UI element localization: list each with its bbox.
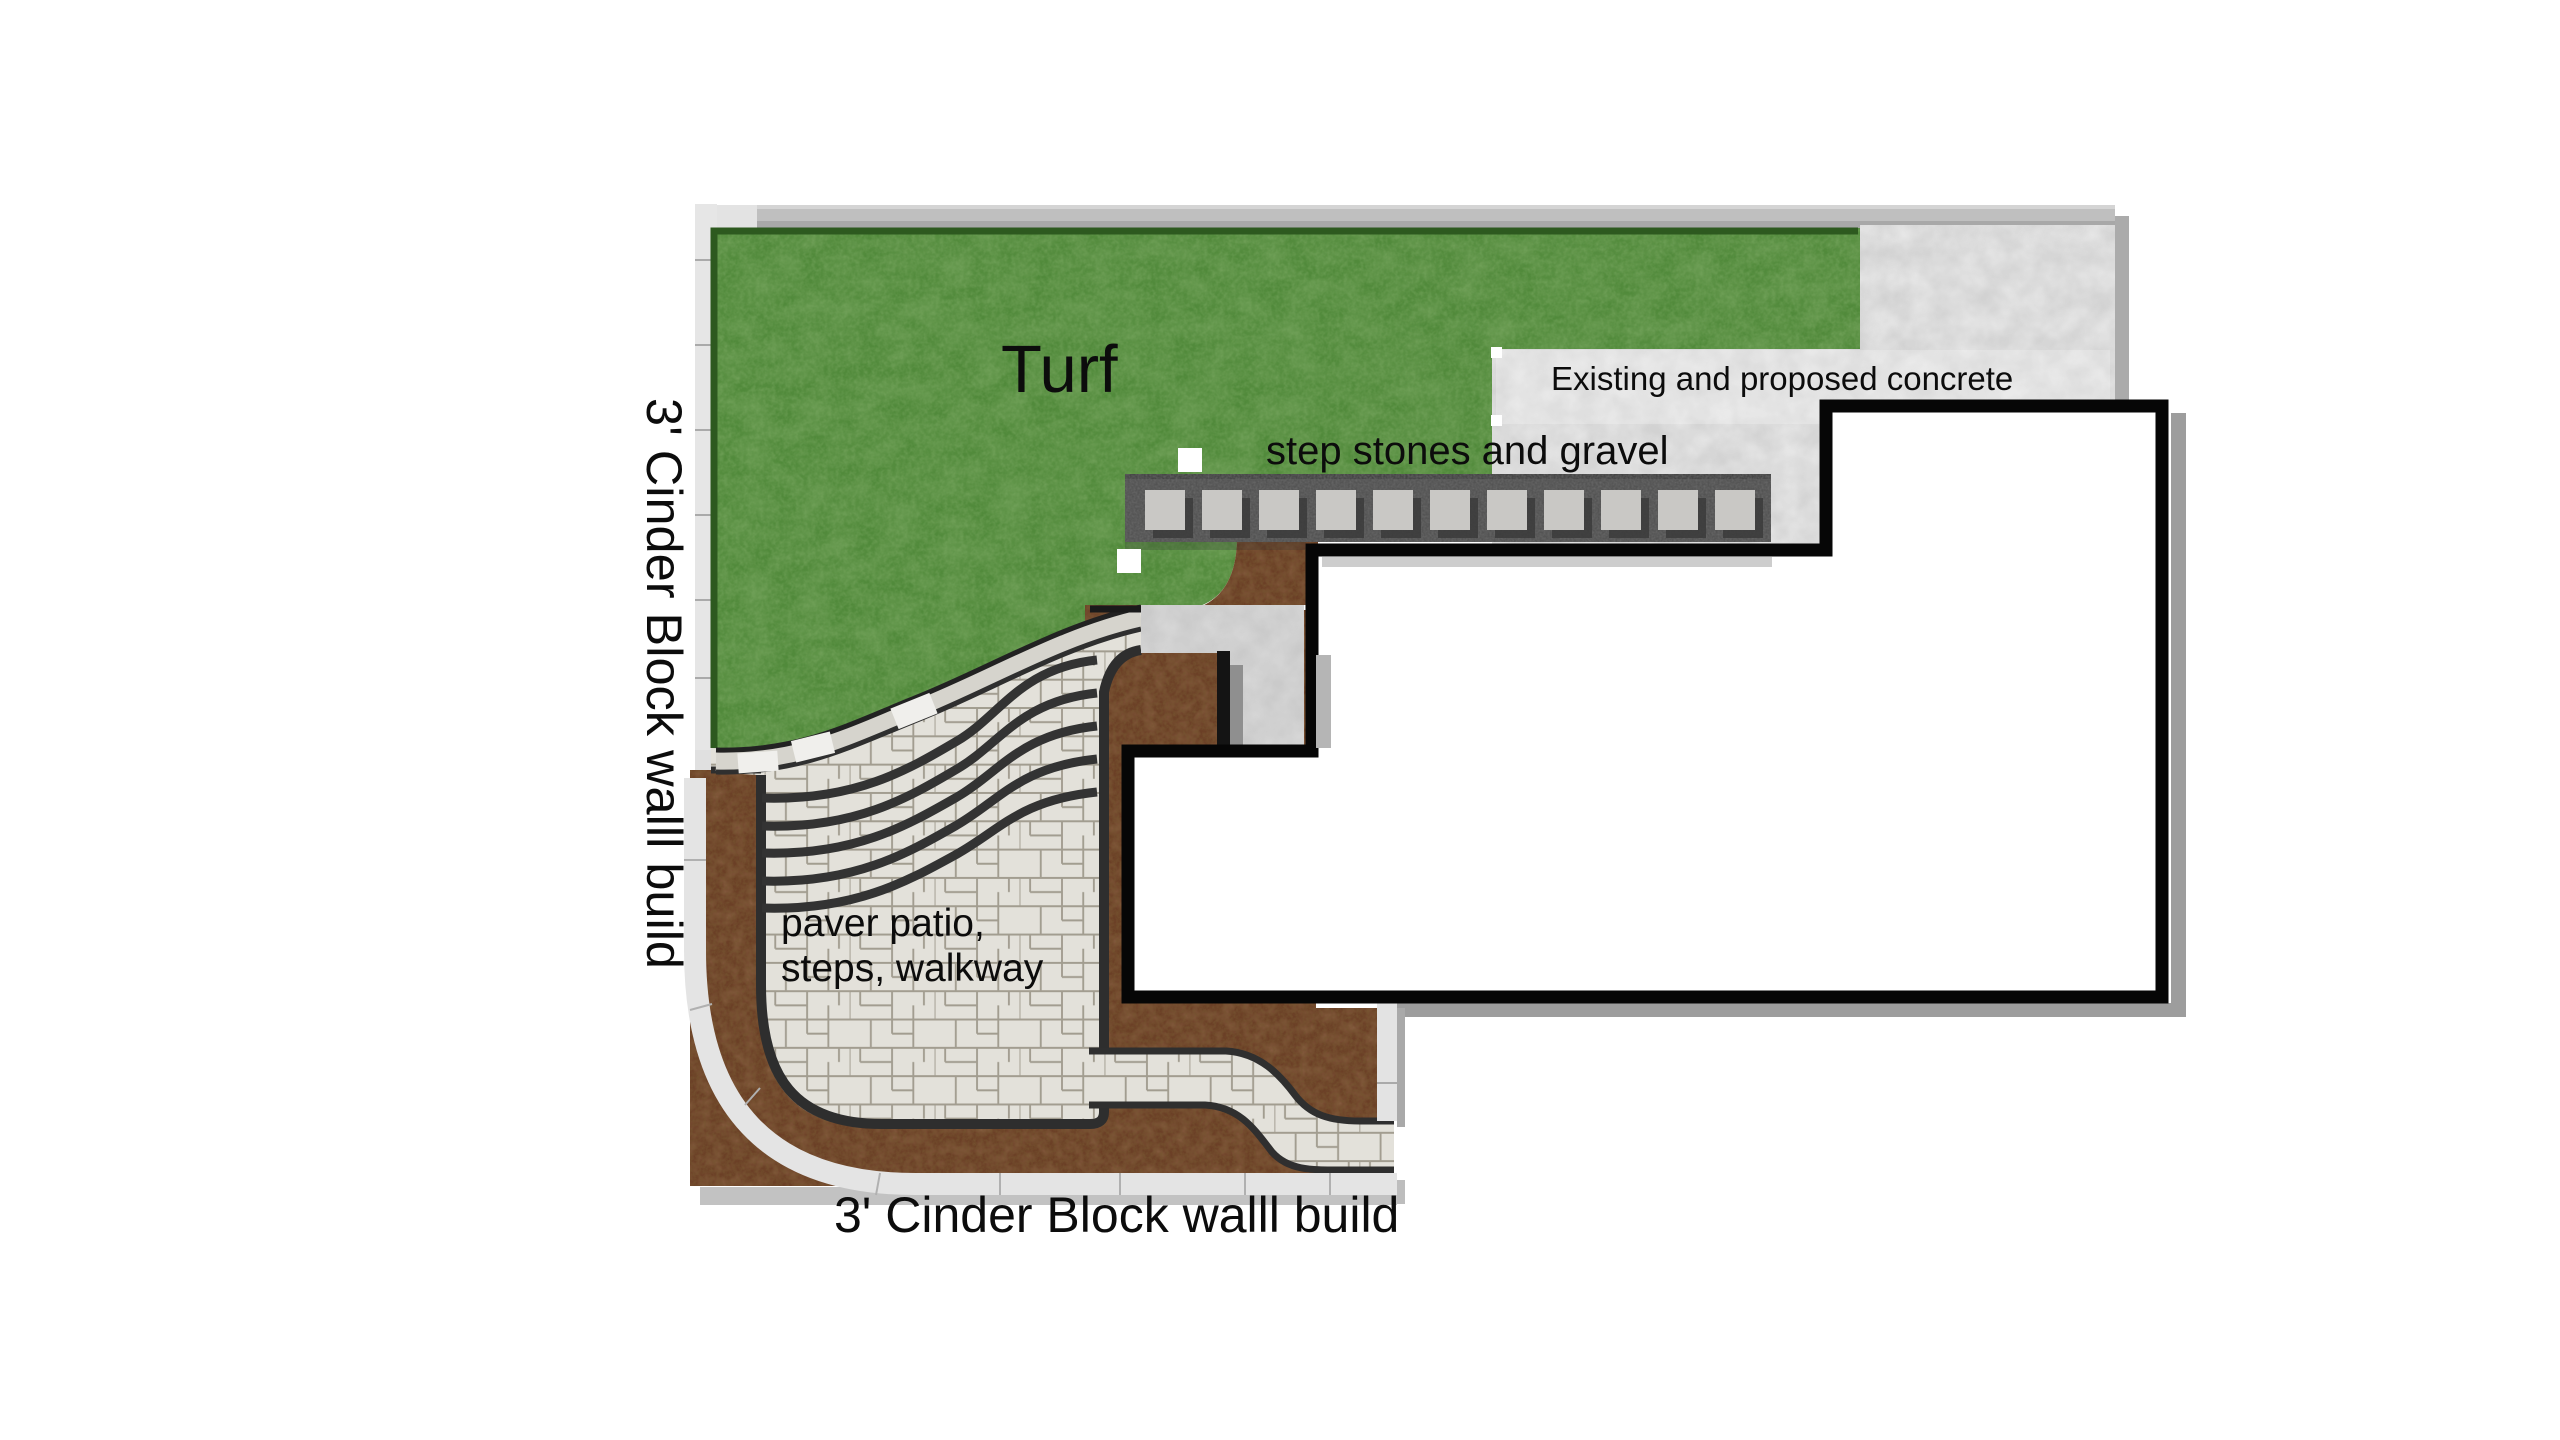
svg-text:Existing and proposed concrete: Existing and proposed concrete	[1551, 360, 2013, 397]
svg-text:Turf: Turf	[1001, 332, 1118, 407]
svg-text:step stones and gravel: step stones and gravel	[1266, 429, 1668, 473]
svg-text:3' Cinder Block walll build: 3' Cinder Block walll build	[636, 398, 693, 969]
svg-text:steps, walkway: steps, walkway	[781, 947, 1044, 990]
svg-text:paver patio,: paver patio,	[781, 902, 985, 945]
svg-text:3' Cinder Block walll build: 3' Cinder Block walll build	[834, 1187, 1399, 1243]
